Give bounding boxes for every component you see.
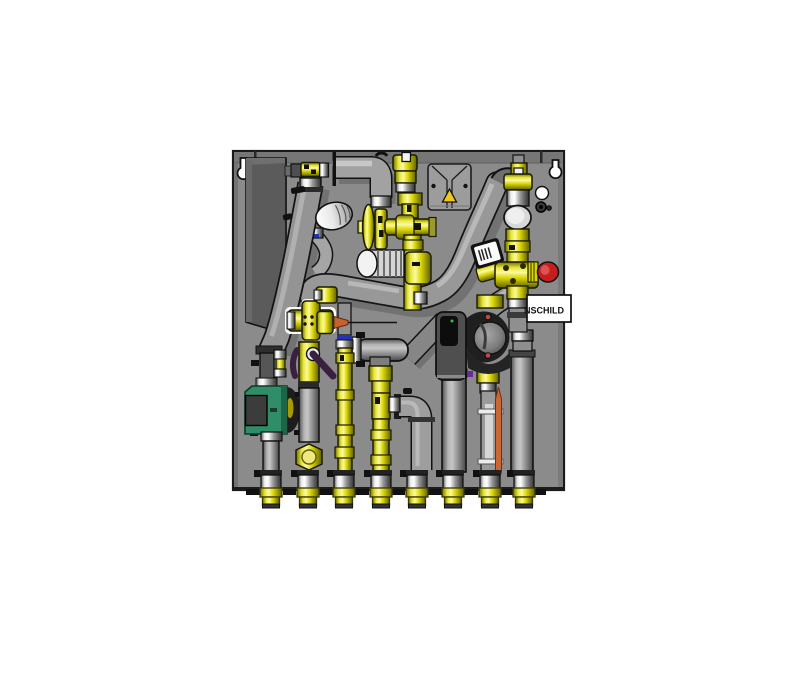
svg-text:NSCHILD: NSCHILD	[524, 306, 564, 316]
